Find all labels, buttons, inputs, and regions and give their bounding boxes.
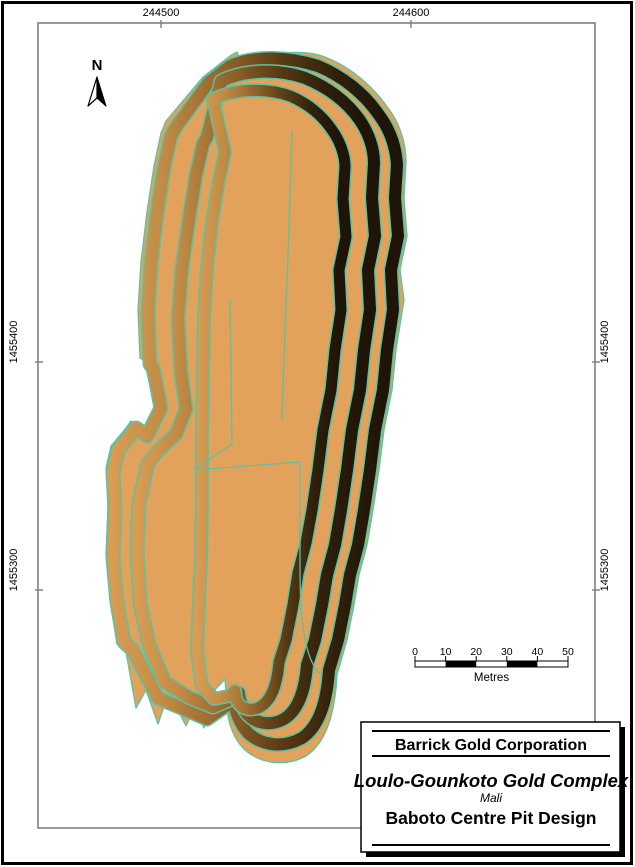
scale-bar: 0 10 20 30 40 50 Metres (412, 646, 574, 684)
company-name: Barrick Gold Corporation (395, 737, 587, 754)
northing-label-right-1455300: 1455300 (599, 549, 611, 592)
complex-name: Loulo-Gounkoto Gold Complex (354, 770, 629, 791)
scale-bar-segment-10-20 (446, 661, 477, 667)
north-label: N (92, 57, 103, 74)
title-block: Barrick Gold Corporation Loulo-Gounkoto … (354, 722, 629, 857)
scale-bar-unit: Metres (474, 672, 509, 684)
scale-bar-rule (415, 661, 568, 667)
north-arrow-icon-fill (97, 77, 106, 106)
easting-label-244500: 244500 (143, 7, 180, 19)
northing-label-left-1455300: 1455300 (8, 549, 20, 592)
north-arrow: N (88, 57, 106, 106)
north-arrow-icon (88, 77, 97, 106)
pit-design-rendering (106, 52, 407, 763)
country-name: Mali (480, 791, 502, 805)
scale-bar-segment-30-40 (507, 661, 538, 667)
map-sheet: 244500 244600 1455400 1455300 1455400 14… (0, 0, 635, 867)
easting-label-244600: 244600 (393, 7, 430, 19)
northing-label-right-1455400: 1455400 (599, 321, 611, 364)
map-title: Baboto Centre Pit Design (386, 808, 597, 828)
northing-label-left-1455400: 1455400 (8, 321, 20, 364)
pit-design-map: 244500 244600 1455400 1455300 1455400 14… (0, 0, 635, 867)
